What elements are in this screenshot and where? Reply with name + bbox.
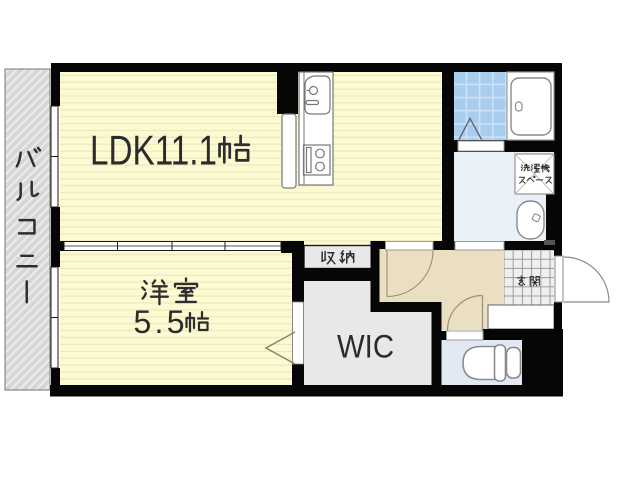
svg-text:LDK11.1: LDK11.1 xyxy=(90,127,217,174)
svg-text:5.5: 5.5 xyxy=(134,304,185,340)
svg-text:WIC: WIC xyxy=(337,329,394,365)
